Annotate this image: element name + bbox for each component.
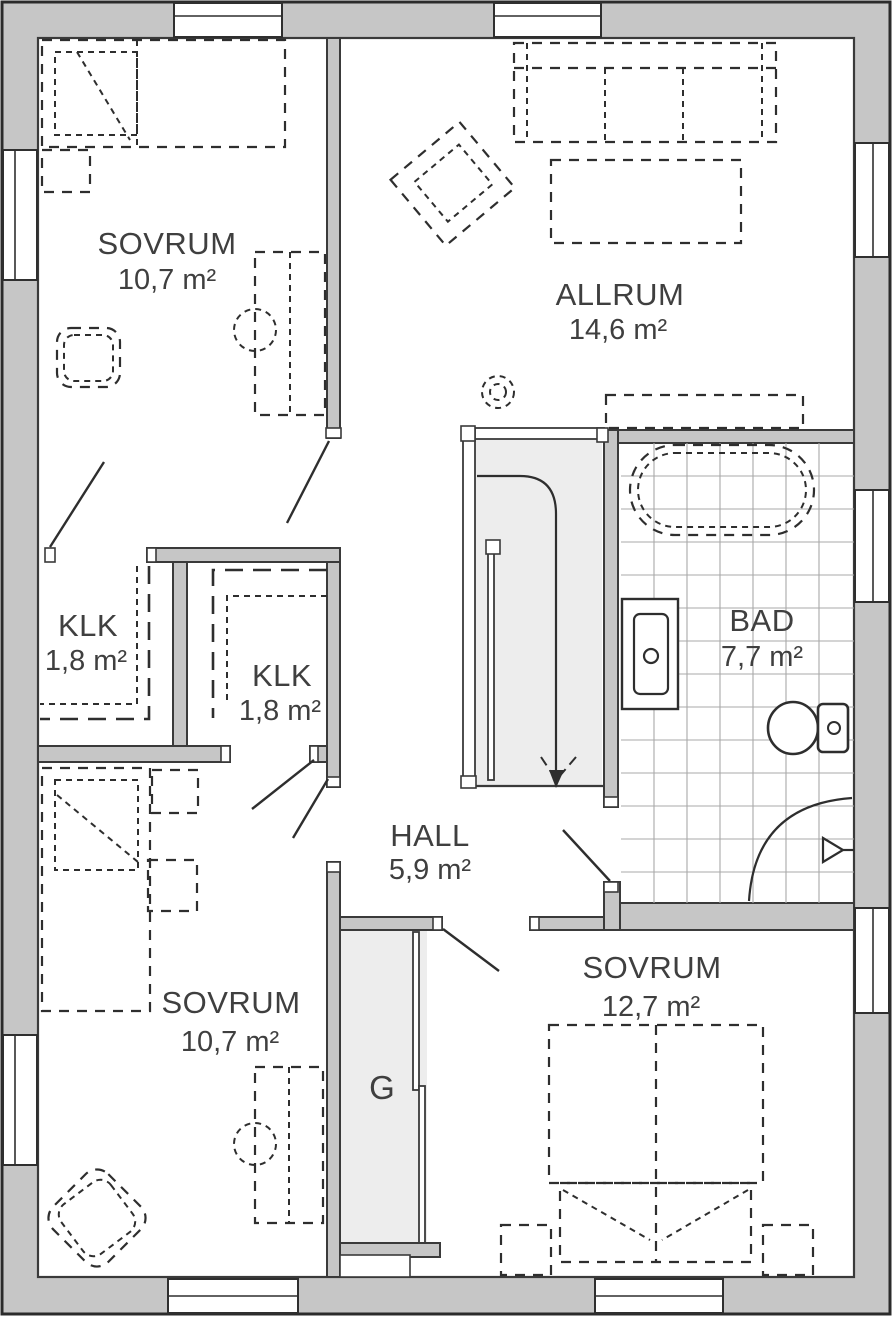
window bbox=[174, 3, 282, 37]
furniture-sovrum-bottom-right bbox=[501, 1025, 813, 1275]
furniture-sovrum-bottom-left bbox=[42, 768, 323, 1273]
pillow bbox=[55, 52, 137, 135]
window bbox=[168, 1279, 298, 1313]
sliding-door-panel bbox=[419, 1086, 425, 1243]
sofa bbox=[514, 43, 776, 142]
tv-bench bbox=[606, 395, 803, 428]
nightstand bbox=[42, 150, 90, 192]
pillow bbox=[55, 780, 138, 870]
window bbox=[3, 1035, 37, 1165]
stair-top-rail bbox=[463, 428, 604, 439]
sliding-door-panel bbox=[413, 932, 419, 1090]
door-sovrum-top-left bbox=[287, 441, 329, 523]
door-sovrum-bottom-right bbox=[443, 929, 499, 971]
room-label-allrum: ALLRUM bbox=[556, 277, 685, 312]
room-area-klk-middle: 1,8 m² bbox=[239, 695, 322, 727]
door-klk-middle bbox=[252, 760, 314, 809]
room-label-sovrum-bottom-left: SOVRUM bbox=[161, 985, 300, 1020]
window bbox=[3, 150, 37, 280]
room-label-bad: BAD bbox=[729, 603, 794, 638]
window bbox=[855, 908, 889, 1013]
room-area-allrum: 14,6 m² bbox=[569, 314, 668, 346]
room-label-garderob: G bbox=[369, 1069, 395, 1106]
wall-niche bbox=[340, 1255, 410, 1277]
side-table bbox=[148, 860, 197, 911]
coffee-table bbox=[551, 160, 741, 243]
room-label-sovrum-bottom-right: SOVRUM bbox=[582, 950, 721, 985]
door-klk-left bbox=[50, 462, 104, 547]
window bbox=[595, 1279, 723, 1313]
room-label-klk-middle: KLK bbox=[252, 658, 312, 693]
floor-plan-canvas: SOVRUM 10,7 m² ALLRUM 14,6 m² KLK 1,8 m²… bbox=[0, 0, 892, 1317]
beanbag bbox=[42, 1163, 152, 1273]
room-area-sovrum-bottom-right: 12,7 m² bbox=[602, 991, 701, 1023]
bathroom-fixtures bbox=[621, 443, 854, 903]
sink bbox=[622, 599, 678, 709]
furniture-allrum bbox=[391, 43, 803, 428]
room-area-bad: 7,7 m² bbox=[721, 641, 804, 673]
room-label-sovrum-top-left: SOVRUM bbox=[97, 226, 236, 261]
shower-corner bbox=[749, 798, 854, 901]
floor-plan-page: SOVRUM 10,7 m² ALLRUM 14,6 m² KLK 1,8 m²… bbox=[0, 0, 892, 1317]
room-area-hall: 5,9 m² bbox=[389, 854, 472, 886]
toilet bbox=[768, 702, 848, 754]
staircase bbox=[461, 426, 604, 788]
room-area-klk-left: 1,8 m² bbox=[45, 645, 128, 677]
nightstand bbox=[501, 1225, 551, 1275]
room-label-klk-left: KLK bbox=[58, 608, 118, 643]
window bbox=[855, 143, 889, 257]
door-sovrum-bottom-left bbox=[293, 779, 328, 838]
armchair bbox=[391, 122, 515, 246]
room-area-sovrum-bottom-left: 10,7 m² bbox=[181, 1026, 280, 1058]
plant bbox=[482, 376, 514, 408]
nightstand bbox=[152, 770, 198, 813]
room-label-hall: HALL bbox=[390, 818, 470, 853]
window bbox=[855, 490, 889, 602]
bed bbox=[42, 768, 150, 1011]
window bbox=[494, 3, 601, 37]
room-area-sovrum-top-left: 10,7 m² bbox=[118, 264, 217, 296]
door-bad bbox=[563, 830, 610, 881]
stair-left-rail bbox=[463, 428, 475, 786]
nightstand bbox=[763, 1225, 813, 1275]
stair-balustrade bbox=[488, 552, 494, 780]
